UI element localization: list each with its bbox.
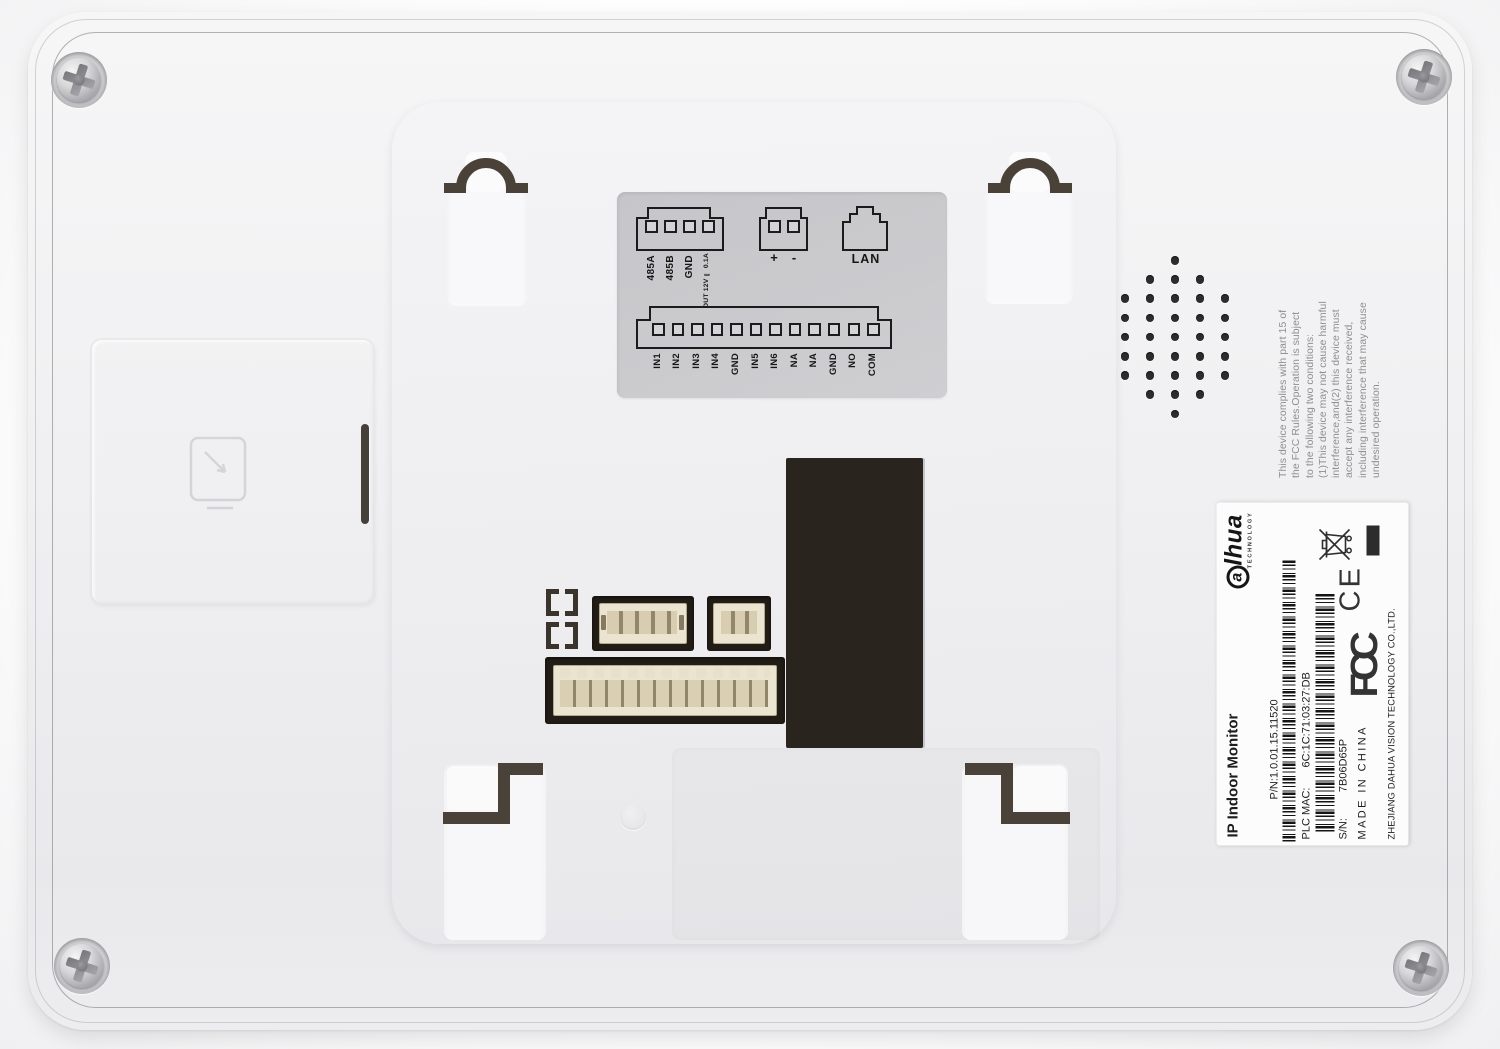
alignment-bracket xyxy=(546,589,559,616)
io-pin-label: GND xyxy=(730,353,741,375)
speaker-row xyxy=(1121,352,1230,361)
speaker-row xyxy=(1121,371,1230,380)
product-name: IP Indoor Monitor xyxy=(1225,714,1242,838)
connector-2pin xyxy=(713,603,765,644)
speaker-hole xyxy=(1196,390,1205,399)
terminal-pin xyxy=(730,323,743,336)
phillips-screw-icon xyxy=(60,944,104,988)
speaker-row xyxy=(1146,390,1205,399)
connector-12pin-teeth xyxy=(560,668,770,678)
connector-recess-12pin xyxy=(545,657,785,724)
phillips-screw-icon xyxy=(1402,55,1446,99)
card-slot xyxy=(361,424,369,524)
connector-latch xyxy=(679,615,684,630)
io-pin-label: IN6 xyxy=(769,353,780,369)
alignment-bracket xyxy=(546,622,559,649)
fcc-compliance-text: This device complies with part 15 of the… xyxy=(1277,228,1399,478)
lan-port-label: LAN xyxy=(844,252,888,266)
io-pin-label: IN3 xyxy=(691,353,702,369)
speaker-hole xyxy=(1196,314,1205,323)
speaker-hole xyxy=(1171,256,1180,265)
power-rating-label: OUT 12V ⎓ 0.1A xyxy=(703,253,711,308)
speaker-hole xyxy=(1196,333,1205,342)
speaker-hole xyxy=(1221,294,1230,303)
dahua-logo: alhua TECHNOLOGY xyxy=(1221,506,1254,598)
serial-label: S/N: xyxy=(1338,818,1350,839)
fcc-mark: FCC xyxy=(1344,639,1387,697)
speaker-hole xyxy=(1171,371,1180,380)
speaker-hole xyxy=(1121,314,1130,323)
corner-screw-top-right xyxy=(1396,49,1452,105)
speaker-hole xyxy=(1146,333,1155,342)
speaker-hole xyxy=(1171,275,1180,284)
io-pin-label: NO xyxy=(847,353,858,368)
speaker-hole xyxy=(1146,314,1155,323)
connector-12pin-pins xyxy=(560,680,768,707)
terminal-pin xyxy=(702,220,715,233)
connector-recess-4pin xyxy=(592,596,694,651)
terminal-pin xyxy=(768,220,781,233)
speaker-hole xyxy=(1221,333,1230,342)
speaker-hole xyxy=(1146,390,1155,399)
hook-sub-recess-right xyxy=(1014,766,1066,810)
connector-2pin-pins xyxy=(721,611,757,634)
speaker-row xyxy=(1121,294,1230,303)
speaker-hole xyxy=(1146,275,1155,284)
part-number: P/N:1.0.01.15.11520 xyxy=(1269,699,1281,799)
serial-value: 7B06D65P xyxy=(1338,739,1350,792)
speaker-hole xyxy=(1146,294,1155,303)
photo-background: LAN 485A485BGNDOUT 12V ⎓ 0.1A+-IN1IN2IN3… xyxy=(0,0,1500,1049)
io-pin-label: IN4 xyxy=(710,353,721,369)
connector-latch xyxy=(601,615,606,630)
io-pin-label: NA xyxy=(789,353,800,367)
speaker-hole xyxy=(1171,390,1180,399)
speaker-hole xyxy=(1171,352,1180,361)
part-number-barcode xyxy=(1283,560,1296,842)
terminal-pin xyxy=(645,220,658,233)
plc-mac-label: PLC MAC: xyxy=(1301,788,1313,840)
speaker-hole xyxy=(1221,314,1230,323)
speaker-row xyxy=(1171,256,1180,265)
speaker-hole xyxy=(1121,294,1130,303)
keyhole-capsule-right xyxy=(1009,152,1051,192)
keyhole-recess-right xyxy=(985,186,1073,304)
terminal-pin xyxy=(787,220,800,233)
terminal-pin xyxy=(848,323,861,336)
io-pin-label: IN1 xyxy=(652,353,663,369)
speaker-row xyxy=(1171,410,1180,419)
speaker-hole xyxy=(1196,294,1205,303)
plc-mac-value: 6C:1C:71:03:27:DB xyxy=(1301,672,1313,767)
hook-sub-recess-left xyxy=(447,766,499,810)
rs485-pin-label: GND xyxy=(684,255,695,278)
io-pin-label: NA xyxy=(808,353,819,367)
speaker-row xyxy=(1146,275,1205,284)
terminal-pin xyxy=(672,323,685,336)
alignment-bracket xyxy=(565,589,578,616)
terminal-pin xyxy=(711,323,724,336)
terminal-pin xyxy=(683,220,696,233)
dc-pin-label: + xyxy=(766,250,782,265)
speaker-hole xyxy=(1196,371,1205,380)
terminal-pin xyxy=(867,323,880,336)
connector-4pin-pins xyxy=(607,611,677,634)
terminal-pin xyxy=(789,323,802,336)
phillips-screw-icon xyxy=(1399,946,1443,990)
weee-bar xyxy=(1367,526,1380,556)
io-pin-label: COM xyxy=(867,353,878,376)
connector-4pin xyxy=(599,603,687,644)
keyhole-recess-left xyxy=(447,186,527,306)
io-pin-label: IN2 xyxy=(671,353,682,369)
keyhole-capsule-left xyxy=(465,152,507,192)
corner-screw-bottom-left xyxy=(54,938,110,994)
speaker-hole xyxy=(1221,352,1230,361)
terminal-pin xyxy=(808,323,821,336)
speaker-hole xyxy=(1121,371,1130,380)
dahua-logo-rest: lhua xyxy=(1221,514,1248,565)
plc-mac-row: PLC MAC: 6C:1C:71:03:27:DB xyxy=(1301,672,1313,839)
manufacturer-text: ZHEJIANG DAHUA VISION TECHNOLOGY CO.,LTD… xyxy=(1387,608,1397,839)
dahua-logo-a: a xyxy=(1227,566,1250,589)
terminal-pin xyxy=(652,323,665,336)
plc-mac-barcode xyxy=(1316,594,1335,832)
wiring-diagram-label: LAN 485A485BGNDOUT 12V ⎓ 0.1A+-IN1IN2IN3… xyxy=(617,192,947,398)
speaker-grille xyxy=(1113,256,1237,418)
rs485-pin-label: 485B xyxy=(665,255,676,281)
speaker-hole xyxy=(1221,371,1230,380)
dc-pin-label: - xyxy=(786,250,802,265)
speaker-row xyxy=(1121,333,1230,342)
serial-row: S/N: 7B06D65P xyxy=(1338,739,1350,840)
ce-mark: CE xyxy=(1335,565,1368,611)
lan-port-outline xyxy=(843,207,887,250)
terminal-pin xyxy=(769,323,782,336)
speaker-hole xyxy=(1171,333,1180,342)
terminal-pin xyxy=(828,323,841,336)
speaker-hole xyxy=(1146,352,1155,361)
connector-recess-2pin xyxy=(707,596,771,651)
speaker-hole xyxy=(1171,314,1180,323)
io-pin-label: GND xyxy=(828,353,839,375)
speaker-hole xyxy=(1171,410,1180,419)
service-cover-outline xyxy=(90,338,375,605)
connector-12pin xyxy=(553,665,777,716)
speaker-hole xyxy=(1121,333,1130,342)
corner-screw-top-left xyxy=(51,52,107,108)
speaker-hole xyxy=(1171,294,1180,303)
weee-bin-icon xyxy=(1317,528,1355,562)
speaker-hole xyxy=(1146,371,1155,380)
rs485-pin-label: 485A xyxy=(646,255,657,281)
bracket-window xyxy=(786,458,923,748)
speaker-hole xyxy=(1196,352,1205,361)
terminal-pin xyxy=(691,323,704,336)
corner-screw-bottom-right xyxy=(1393,940,1449,996)
speaker-row xyxy=(1121,314,1230,323)
origin-text: MADE IN CHINA xyxy=(1357,725,1369,839)
speaker-hole xyxy=(1121,352,1130,361)
terminal-pin xyxy=(750,323,763,336)
terminal-pin xyxy=(664,220,677,233)
phillips-screw-icon xyxy=(57,58,101,102)
alignment-bracket xyxy=(565,622,578,649)
product-label: IP Indoor Monitor alhua TECHNOLOGY P/N:1… xyxy=(1217,503,1409,846)
screw-boss xyxy=(620,804,646,830)
dahua-logo-sub: TECHNOLOGY xyxy=(1248,506,1254,598)
speaker-hole xyxy=(1196,275,1205,284)
io-pin-label: IN5 xyxy=(750,353,761,369)
